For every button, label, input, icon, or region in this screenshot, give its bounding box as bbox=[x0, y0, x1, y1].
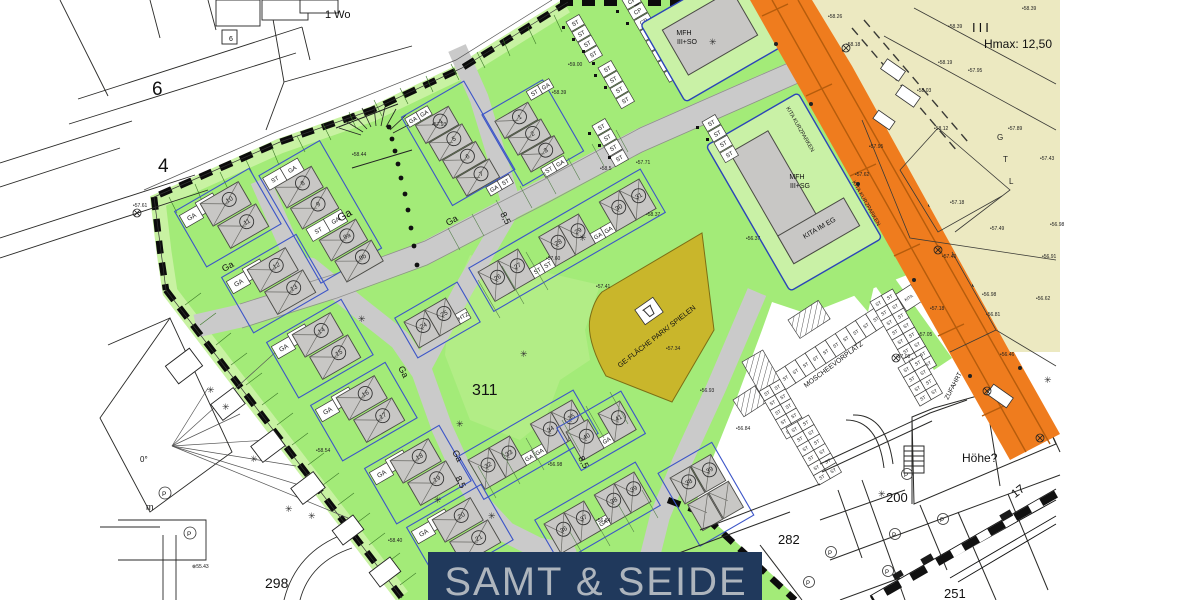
svg-text:P: P bbox=[904, 473, 908, 479]
svg-text:✳: ✳ bbox=[285, 504, 293, 514]
svg-text:•57.49: •57.49 bbox=[990, 226, 1004, 232]
svg-text:6: 6 bbox=[229, 36, 233, 43]
svg-text:•57.18: •57.18 bbox=[930, 306, 944, 312]
svg-text:•58.37: •58.37 bbox=[646, 212, 660, 218]
svg-text:P: P bbox=[940, 518, 944, 524]
svg-text:298: 298 bbox=[265, 575, 289, 591]
svg-text:✳: ✳ bbox=[358, 314, 366, 324]
svg-text:1 Wo: 1 Wo bbox=[325, 9, 350, 21]
svg-text:Hmax: 12,50: Hmax: 12,50 bbox=[984, 37, 1052, 51]
svg-text:P: P bbox=[162, 491, 166, 498]
svg-text:•58.54: •58.54 bbox=[316, 448, 330, 454]
svg-text:Höhe?: Höhe? bbox=[962, 451, 998, 465]
svg-text:•58.39: •58.39 bbox=[948, 24, 962, 30]
svg-text:•56.46: •56.46 bbox=[1000, 352, 1014, 358]
svg-text:•58.03: •58.03 bbox=[917, 88, 931, 94]
svg-text:•56.37: •56.37 bbox=[746, 236, 760, 242]
svg-text:4: 4 bbox=[158, 156, 169, 177]
svg-text:SAMT & SEIDE: SAMT & SEIDE bbox=[444, 560, 747, 600]
svg-text:•58.40: •58.40 bbox=[388, 538, 402, 544]
svg-text:✳: ✳ bbox=[434, 495, 442, 505]
svg-text:•58.12: •58.12 bbox=[934, 126, 948, 132]
svg-text:P: P bbox=[885, 570, 889, 576]
svg-text:•57.95: •57.95 bbox=[869, 144, 883, 150]
svg-text:✳: ✳ bbox=[222, 402, 230, 412]
svg-text:P: P bbox=[187, 531, 191, 538]
svg-text:•58.5: •58.5 bbox=[600, 166, 612, 172]
svg-text:P: P bbox=[806, 581, 810, 587]
svg-text:✳: ✳ bbox=[520, 349, 528, 359]
svg-text:251: 251 bbox=[944, 586, 966, 600]
svg-text:•57.40: •57.40 bbox=[942, 254, 956, 260]
svg-text:•57.05: •57.05 bbox=[918, 332, 932, 338]
svg-text:•56.62: •56.62 bbox=[1036, 296, 1050, 302]
svg-text:•57.18: •57.18 bbox=[950, 200, 964, 206]
svg-text:•57.43: •57.43 bbox=[1040, 156, 1054, 162]
svg-text:•57.62: •57.62 bbox=[855, 172, 869, 178]
svg-text:MFH: MFH bbox=[789, 174, 804, 181]
svg-text:•58.39: •58.39 bbox=[552, 90, 566, 96]
svg-text:282: 282 bbox=[778, 532, 800, 547]
svg-text:✳: ✳ bbox=[878, 489, 886, 499]
svg-text:✳: ✳ bbox=[1044, 375, 1052, 385]
svg-text:•56.91: •56.91 bbox=[1042, 254, 1056, 260]
svg-text:⊗55.43: ⊗55.43 bbox=[192, 564, 209, 570]
svg-text:200: 200 bbox=[886, 490, 908, 505]
svg-text:•58.39: •58.39 bbox=[1022, 6, 1036, 12]
svg-text:0°: 0° bbox=[140, 455, 148, 464]
svg-text:•57.60: •57.60 bbox=[546, 256, 560, 262]
svg-text:L: L bbox=[1009, 177, 1014, 186]
svg-text:6: 6 bbox=[152, 79, 163, 100]
svg-text:P: P bbox=[828, 551, 832, 557]
svg-text:III+SO: III+SO bbox=[677, 39, 698, 46]
svg-text:III+SG: III+SG bbox=[790, 183, 810, 190]
svg-text:✳: ✳ bbox=[250, 454, 258, 464]
svg-text:•57.34: •57.34 bbox=[666, 346, 680, 352]
svg-text:•58.26: •58.26 bbox=[828, 14, 842, 20]
svg-text:✳: ✳ bbox=[207, 385, 215, 395]
svg-text:P: P bbox=[892, 533, 896, 539]
svg-text:•57.61: •57.61 bbox=[133, 203, 147, 209]
svg-text:•57.71: •57.71 bbox=[636, 160, 650, 166]
svg-text:•58.19: •58.19 bbox=[938, 60, 952, 66]
svg-text:m: m bbox=[146, 502, 154, 512]
svg-text:✳: ✳ bbox=[488, 511, 496, 521]
svg-text:•58.44: •58.44 bbox=[352, 152, 366, 158]
svg-text:✳: ✳ bbox=[709, 37, 717, 47]
svg-text:•59.00: •59.00 bbox=[568, 62, 582, 68]
svg-text:MFH: MFH bbox=[676, 30, 691, 37]
svg-text:✳: ✳ bbox=[308, 511, 316, 521]
svg-text:G: G bbox=[997, 133, 1003, 142]
svg-text:III: III bbox=[972, 20, 992, 35]
svg-text:•57.95: •57.95 bbox=[968, 68, 982, 74]
svg-text:•57.89: •57.89 bbox=[1008, 126, 1022, 132]
svg-text:•56.84: •56.84 bbox=[736, 426, 750, 432]
svg-text:•56.93: •56.93 bbox=[700, 388, 714, 394]
svg-text:•56.84: •56.84 bbox=[596, 518, 610, 524]
svg-text:•57.93: •57.93 bbox=[432, 122, 446, 128]
svg-text:T: T bbox=[1003, 155, 1008, 164]
svg-text:•56.81: •56.81 bbox=[986, 312, 1000, 318]
svg-text:•56.98: •56.98 bbox=[982, 292, 996, 298]
svg-text:✳: ✳ bbox=[579, 233, 587, 243]
svg-text:311: 311 bbox=[472, 382, 498, 399]
svg-text:•56.98: •56.98 bbox=[1050, 222, 1064, 228]
svg-text:•57.41: •57.41 bbox=[596, 284, 610, 290]
svg-text:•56.98: •56.98 bbox=[548, 462, 562, 468]
svg-text:✳: ✳ bbox=[456, 419, 464, 429]
